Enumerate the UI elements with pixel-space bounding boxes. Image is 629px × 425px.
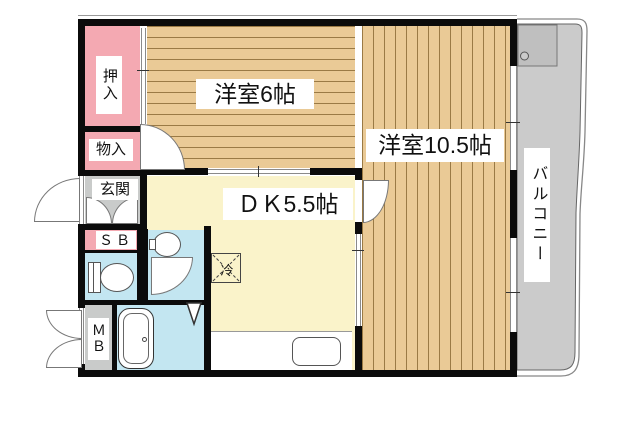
folding-door-bath	[185, 302, 207, 328]
drain-circle	[521, 52, 529, 60]
label-room6: 洋室6帖	[196, 79, 314, 109]
door-swing-entrance	[34, 178, 80, 222]
sliding-door-oshiire	[141, 28, 146, 124]
label-oshiire: 押入	[96, 56, 122, 114]
tick-room6-dk	[258, 166, 259, 177]
wall-genkan-right	[140, 176, 147, 230]
label-meter-box: ＭＢ	[88, 318, 109, 360]
wall-mb-right	[112, 305, 117, 370]
wall-top	[78, 19, 517, 26]
label-shoebox: ＳＢ	[96, 231, 136, 249]
refrigerator-label: 冷	[212, 254, 242, 284]
sliding-door-dk-room10	[356, 234, 361, 326]
floor-plan: 冷 押入 物入 玄関 ＳＢ ＭＢ 洋室6帖 ＤＫ5.5帖 洋室10.5帖 バルコ…	[0, 0, 629, 425]
wall-dk-room10-a	[355, 168, 362, 180]
wall-oshiire-monoire	[85, 126, 145, 132]
wall-right-middle	[510, 170, 517, 238]
tick-dk-room10	[352, 250, 364, 251]
wall-top-outline	[78, 15, 517, 16]
tick-window-upper	[506, 122, 520, 123]
refrigerator-box: 冷	[211, 253, 241, 283]
toilet-tank-line	[93, 263, 94, 292]
label-balcony: バルコニー	[524, 148, 550, 282]
sliding-door-room6-dk	[208, 169, 310, 174]
washbasin	[153, 232, 181, 257]
toilet-bowl	[100, 263, 134, 292]
door-swing-mb-lower	[46, 339, 82, 368]
wall-left-upper	[78, 19, 85, 176]
washbasin-tap	[149, 239, 156, 250]
wall-right-lower	[510, 332, 517, 377]
wall-monoire-genkan	[85, 170, 145, 176]
wall-dk-room10-c	[355, 326, 362, 377]
label-room10: 洋室10.5帖	[366, 129, 504, 162]
label-monoire: 物入	[89, 139, 133, 161]
wall-right-upper	[510, 19, 517, 66]
tick-oshiire	[137, 70, 149, 71]
label-dk: ＤＫ5.5帖	[223, 188, 353, 220]
kitchen-sink	[292, 337, 341, 366]
door-swing-mb-upper	[46, 310, 82, 339]
window-room10-lower	[510, 238, 517, 332]
wall-toilet-right	[137, 229, 148, 303]
wall-left-middle	[78, 224, 85, 308]
wall-dk-room10-b	[355, 222, 362, 234]
label-genkan: 玄関	[92, 179, 138, 200]
window-room10-upper	[510, 66, 517, 170]
wall-bottom	[78, 370, 517, 377]
bathtub-drain	[142, 337, 147, 342]
tick-window-lower	[506, 292, 520, 293]
